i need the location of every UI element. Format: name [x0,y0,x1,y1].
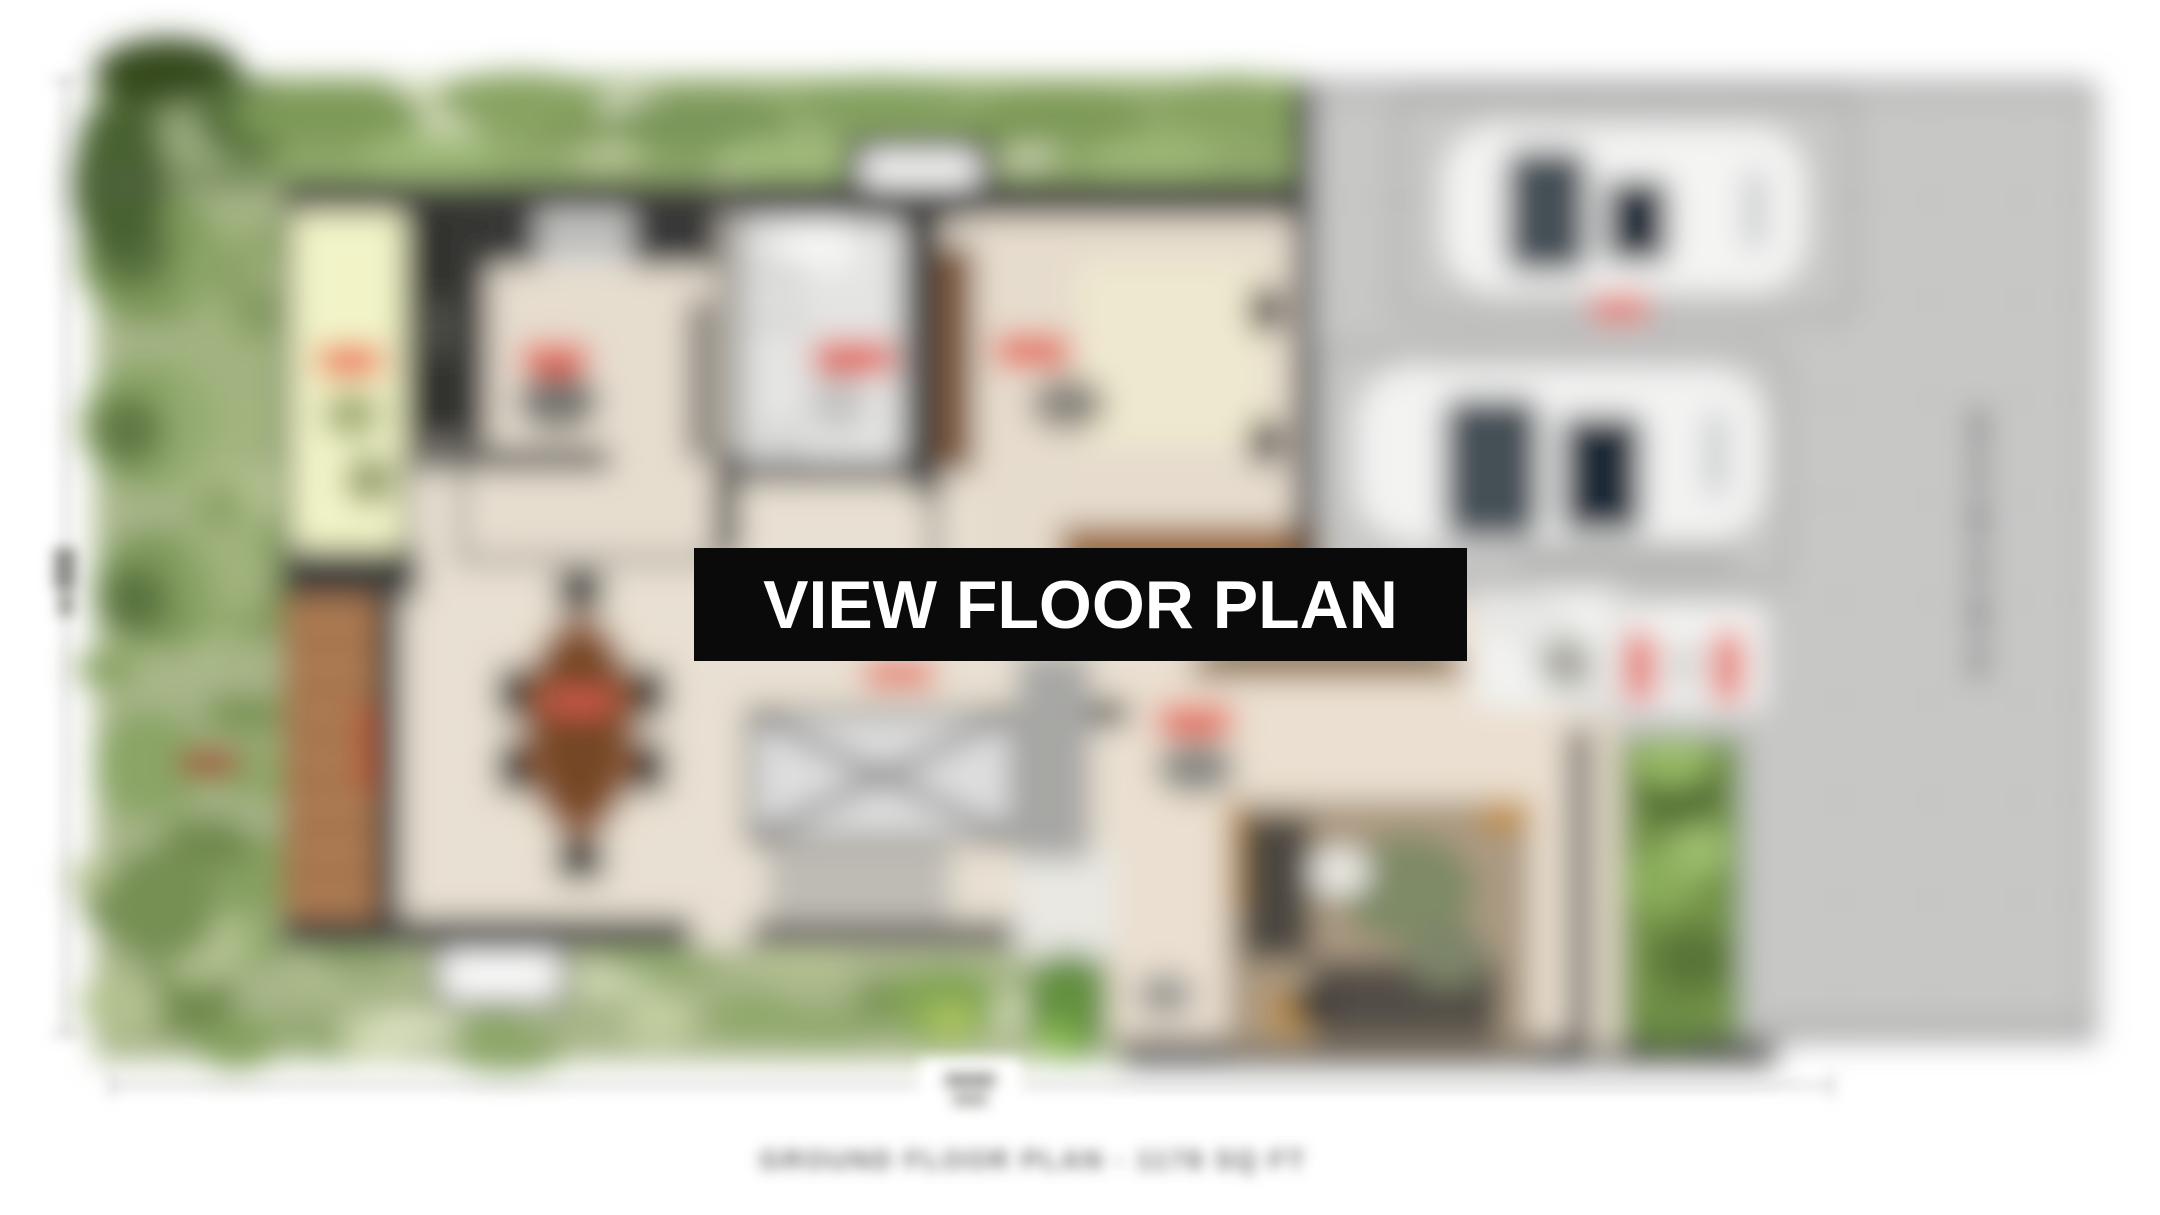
svg-text:GROUND FLOOR PLAN - 1178 SQ: GROUND FLOOR PLAN - 1178 SQ FT [759,1145,1307,1175]
